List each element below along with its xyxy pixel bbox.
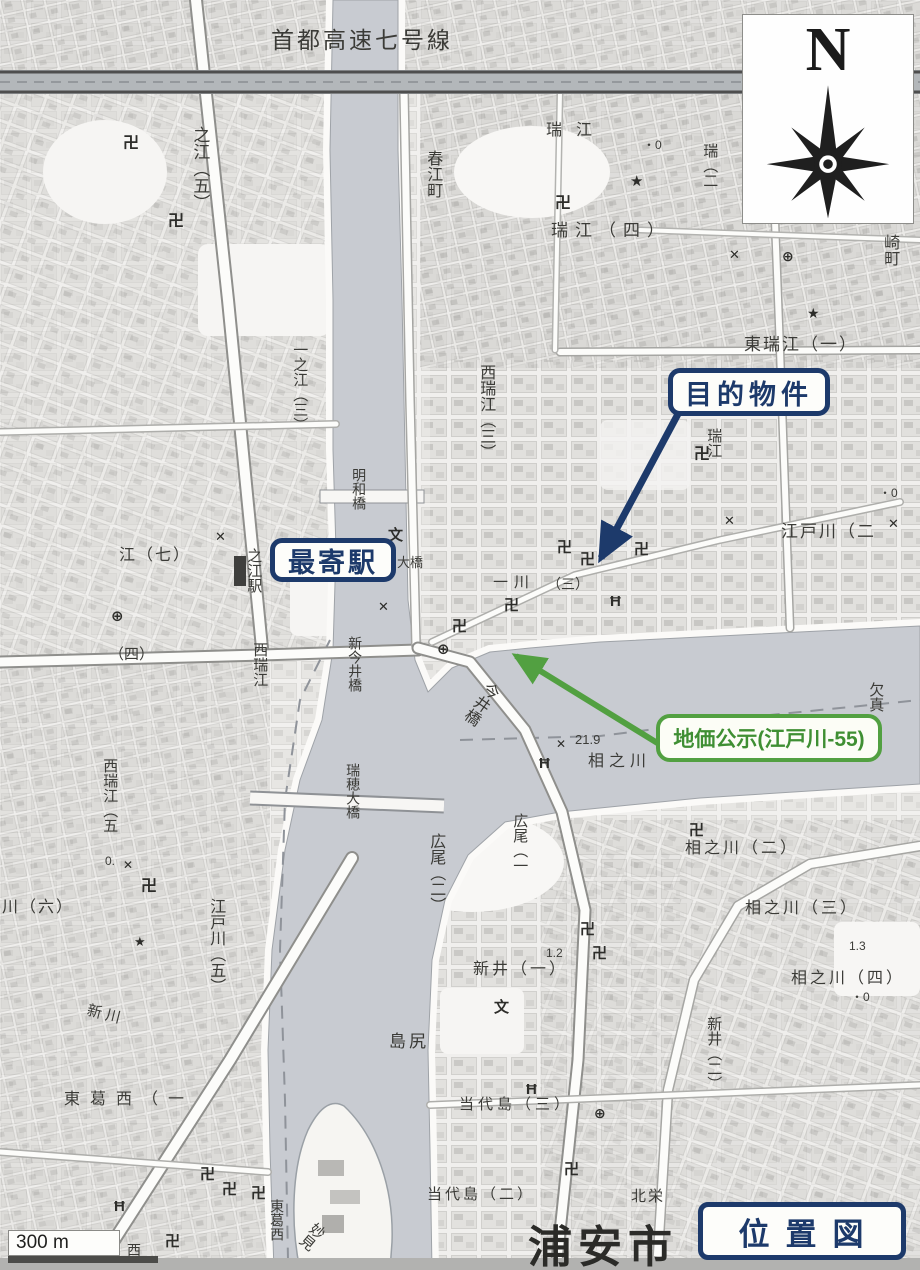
station-box (234, 556, 246, 586)
compass-north-label: N (743, 19, 913, 81)
scale-bar-line (8, 1256, 158, 1263)
compass-rose: N (742, 14, 914, 224)
land-price-callout: 地価公示(江戸川-55) (656, 714, 882, 762)
compass-star (753, 81, 903, 221)
map-title-box: 位置図 (698, 1202, 906, 1260)
scale-bar: 300 m (8, 1230, 120, 1256)
scale-bar-label: 300 m (16, 1232, 69, 1254)
location-map-page: 首都高速七号線之江（五）春江町瑞江瑞江（四）瑞（二崎町東瑞江（一）西瑞江（三）瑞… (0, 0, 920, 1270)
target-property-callout: 目的物件 (668, 368, 830, 416)
nearest-station-callout: 最寄駅 (270, 538, 396, 582)
